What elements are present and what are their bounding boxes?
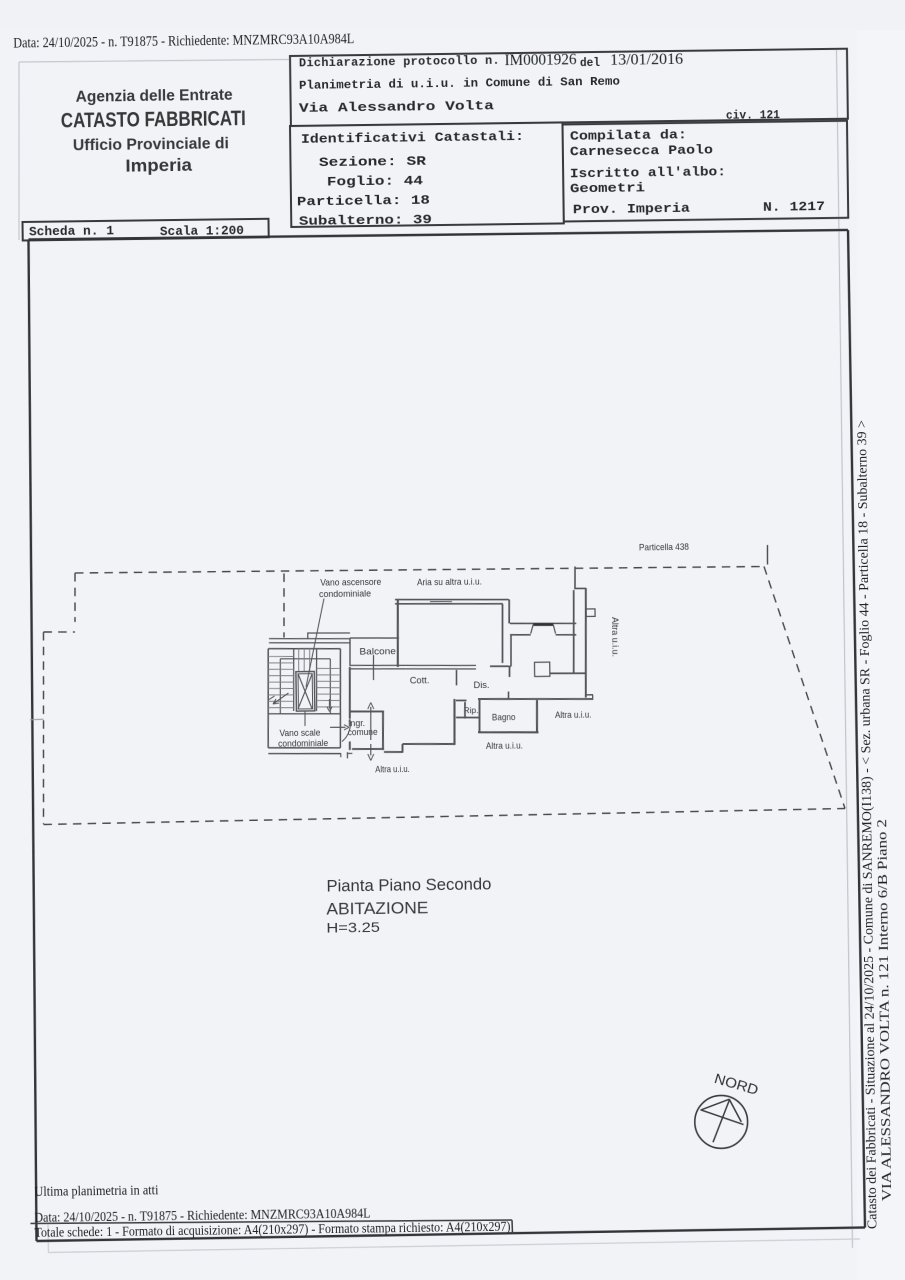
svg-text:IM0001926: IM0001926 — [504, 51, 576, 69]
svg-text:N. 1217: N. 1217 — [763, 199, 825, 215]
svg-text:CATASTO FABBRICATI: CATASTO FABBRICATI — [61, 107, 246, 132]
svg-text:Altra u.i.u.: Altra u.i.u. — [555, 710, 592, 720]
svg-text:comune: comune — [348, 727, 378, 737]
svg-text:Vano scale: Vano scale — [279, 727, 320, 738]
svg-text:Particella: 18: Particella: 18 — [297, 193, 430, 210]
svg-text:Ultima planimetria in atti: Ultima planimetria in atti — [34, 1182, 158, 1199]
svg-text:condominiale: condominiale — [319, 588, 371, 599]
svg-text:condominiale: condominiale — [278, 738, 328, 749]
svg-text:Pianta Piano Secondo: Pianta Piano Secondo — [326, 875, 491, 895]
svg-text:Ufficio Provinciale di: Ufficio Provinciale di — [73, 135, 229, 154]
svg-text:Subalterno: 39: Subalterno: 39 — [299, 212, 432, 229]
svg-text:Particella 438: Particella 438 — [639, 542, 689, 553]
svg-text:Dis.: Dis. — [473, 680, 489, 690]
svg-text:Carnesecca Paolo: Carnesecca Paolo — [570, 143, 713, 160]
svg-text:H=3.25: H=3.25 — [326, 920, 380, 936]
svg-text:Dichiarazione protocollo n.: Dichiarazione protocollo n. — [299, 54, 500, 71]
svg-text:Scala 1:200: Scala 1:200 — [160, 223, 244, 239]
svg-text:Vano ascensore: Vano ascensore — [320, 577, 381, 588]
svg-text:Imperia: Imperia — [125, 155, 192, 176]
svg-text:Geometri: Geometri — [570, 181, 645, 197]
svg-text:Altra u.i.u.: Altra u.i.u. — [610, 617, 621, 657]
svg-text:Aria su altra u.i.u.: Aria su altra u.i.u. — [417, 577, 482, 588]
svg-text:Iscritto all'albo:: Iscritto all'albo: — [570, 164, 726, 181]
svg-text:Altra u.i.u.: Altra u.i.u. — [486, 741, 523, 751]
svg-text:Altra u.i.u.: Altra u.i.u. — [375, 764, 410, 774]
svg-text:del: del — [580, 56, 600, 70]
svg-text:Bagno: Bagno — [492, 712, 516, 723]
svg-text:Foglio: 44: Foglio: 44 — [327, 173, 423, 189]
svg-text:Agenzia delle Entrate: Agenzia delle Entrate — [76, 86, 234, 105]
svg-text:Scheda n. 1: Scheda n. 1 — [29, 223, 114, 239]
svg-text:Prov. Imperia: Prov. Imperia — [573, 201, 690, 218]
svg-text:Compilata da:: Compilata da: — [570, 127, 687, 144]
svg-text:Cott.: Cott. — [410, 675, 430, 685]
svg-text:Identificativi Catastali:: Identificativi Catastali: — [301, 129, 524, 147]
svg-text:civ. 121: civ. 121 — [726, 108, 780, 123]
svg-text:ABITAZIONE: ABITAZIONE — [326, 899, 428, 918]
svg-text:13/01/2016: 13/01/2016 — [610, 51, 683, 69]
svg-text:Via Alessandro Volta: Via Alessandro Volta — [299, 99, 495, 116]
svg-text:Sezione: SR: Sezione: SR — [319, 154, 426, 170]
svg-text:Balcone: Balcone — [359, 646, 396, 656]
